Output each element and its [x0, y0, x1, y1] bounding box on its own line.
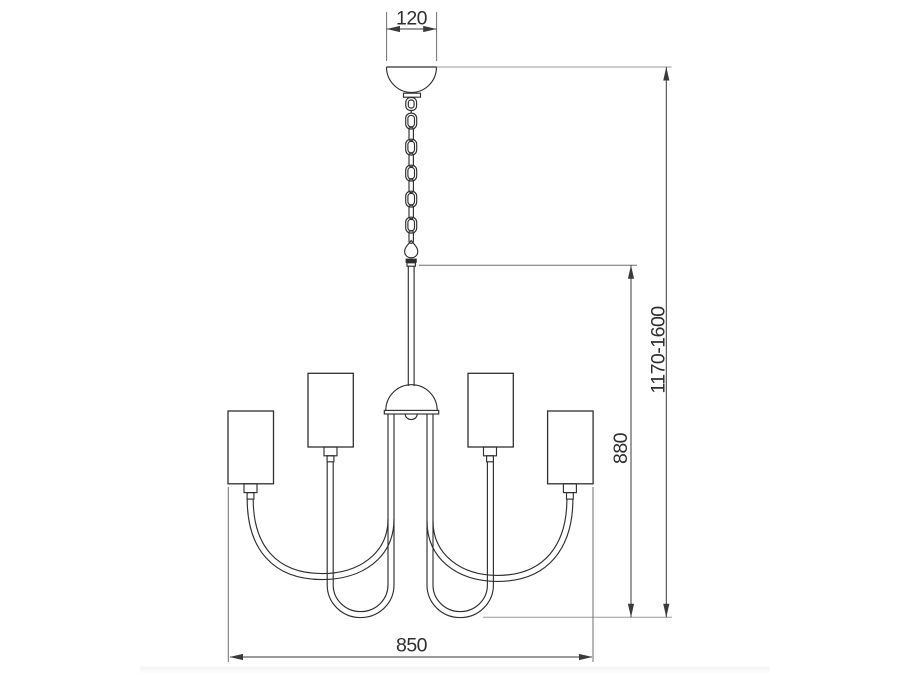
dim-body-width: 850 [228, 487, 593, 662]
chain-hook [405, 241, 418, 267]
chain-links-front [406, 113, 417, 233]
dim-canopy-width: 120 [387, 8, 437, 62]
arrowhead-down [628, 604, 634, 618]
suspension-chain [404, 93, 421, 266]
dim-body-height: 880 [610, 265, 634, 617]
arm-outer-right [427, 499, 573, 581]
arrowhead-left [230, 654, 244, 660]
dim-label-body-height: 880 [610, 432, 632, 464]
shade-inner-right [468, 373, 513, 462]
dimension-annotations: 120 1170-1600 880 850 [228, 8, 672, 663]
ceiling-canopy [387, 67, 437, 92]
arrowhead-up [663, 67, 669, 81]
arm-outer-left [247, 499, 394, 580]
dim-label-body-width: 850 [396, 635, 428, 657]
central-hub [384, 385, 438, 420]
shade-outer-right [548, 411, 594, 499]
dimension-drawing-canvas: 120 1170-1600 880 850 [0, 0, 900, 675]
shade-inner-left [308, 373, 353, 462]
arrowhead-down [663, 604, 669, 618]
shade-outer-left [228, 411, 274, 499]
dim-label-canopy-width: 120 [396, 8, 428, 30]
dim-label-overall-height: 1170-1600 [648, 306, 670, 394]
chandelier-technical-drawing: 120 1170-1600 880 850 [0, 0, 900, 675]
arrowhead-up [628, 265, 634, 279]
hanging-rod [408, 266, 414, 386]
chain-links-edge [409, 127, 413, 243]
photo-edge-shadow [140, 667, 770, 675]
dim-overall-height: 1170-1600 [648, 67, 670, 617]
chandelier [228, 67, 593, 618]
arrowhead-right [579, 654, 593, 660]
